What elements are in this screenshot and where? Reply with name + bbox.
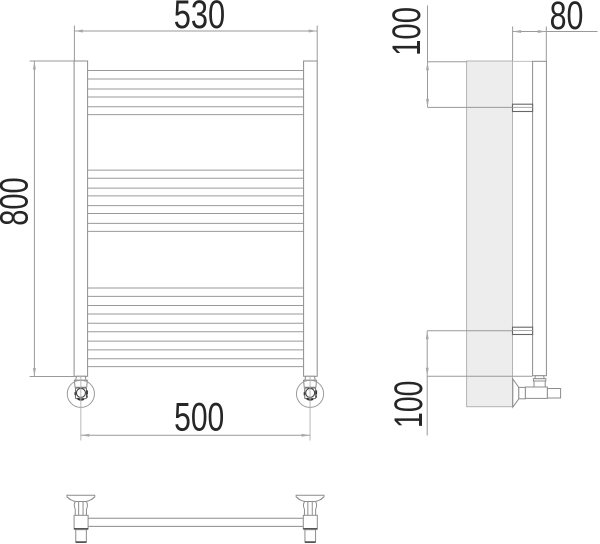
svg-text:800: 800 <box>0 177 36 225</box>
svg-text:500: 500 <box>174 395 224 439</box>
svg-text:80: 80 <box>550 0 584 38</box>
svg-text:530: 530 <box>174 0 225 37</box>
svg-text:100: 100 <box>385 7 429 56</box>
svg-text:100: 100 <box>387 381 431 428</box>
